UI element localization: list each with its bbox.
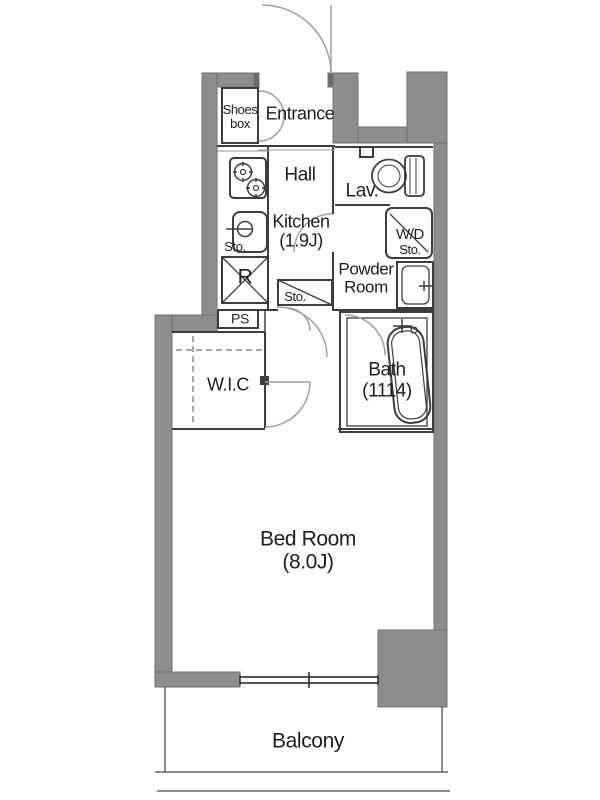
bedroom-label-size: (8.0J) (260, 551, 356, 574)
bath-label: Bath (1114) (362, 360, 412, 401)
hall-storage-label: Sto. (284, 290, 306, 304)
bath-label-name: Bath (362, 360, 412, 381)
wic-label: W.I.C (207, 375, 249, 394)
entrance-jamb-right (328, 73, 333, 87)
hall-corridor-door-arc-small (287, 308, 310, 331)
bedroom-label: Bed Room (8.0J) (260, 528, 356, 573)
wall-notch-bottom (358, 127, 407, 143)
floorplan-page: Shoes box Entrance Hall Lav. Kitchen (1.… (0, 0, 600, 800)
powder-room-label-line2: Room (338, 279, 393, 297)
balcony-label: Balcony (272, 731, 344, 754)
lav-label: Lav. (346, 182, 379, 203)
wic-door-jamb (261, 377, 268, 384)
kitchen-storage-label: Sto. (224, 240, 246, 254)
stove-icon (230, 158, 266, 198)
wd-storage-label: W/D Sto. (396, 227, 424, 257)
wd-storage-label-line1: W/D (396, 227, 424, 243)
shoes-box-label-line1: Shoes (223, 103, 258, 117)
bath-door-arc (345, 315, 385, 355)
kitchen-label-name: Kitchen (272, 213, 329, 232)
hall-label: Hall (284, 166, 315, 187)
washbasin-icon (397, 262, 433, 308)
powder-room-label-line1: Powder (338, 261, 393, 279)
balcony-window (240, 672, 378, 688)
pillar-top-right (407, 72, 447, 143)
kitchen-label-size: (1.9J) (272, 232, 329, 251)
kitchen-label: Kitchen (1.9J) (272, 213, 329, 252)
entrance-label: Entrance (266, 104, 335, 123)
wd-storage-label-line2: Sto. (396, 243, 424, 257)
bath-label-size: (1114) (362, 381, 412, 402)
wall-left-upper (202, 73, 217, 332)
powder-room-label: Powder Room (338, 261, 393, 298)
shoes-box-label: Shoes box (223, 103, 258, 131)
toilet-icon (372, 156, 424, 196)
wall-right (434, 143, 447, 632)
entrance-jamb-left (254, 73, 259, 87)
entrance-door-arc (262, 5, 331, 74)
secondary-lines (217, 150, 335, 151)
bedroom-door-arc (265, 382, 310, 427)
wall-left-lower (155, 315, 172, 687)
pillar-bottom-right (378, 630, 447, 707)
wall-notch-left (333, 73, 358, 143)
shoes-box-label-line2: box (223, 117, 258, 131)
bedroom-label-name: Bed Room (260, 528, 356, 551)
pipe-space-label: PS (231, 311, 249, 326)
refrigerator-label: R (238, 267, 253, 290)
lav-shelf (360, 147, 373, 157)
wall-bottom-left (155, 672, 240, 687)
